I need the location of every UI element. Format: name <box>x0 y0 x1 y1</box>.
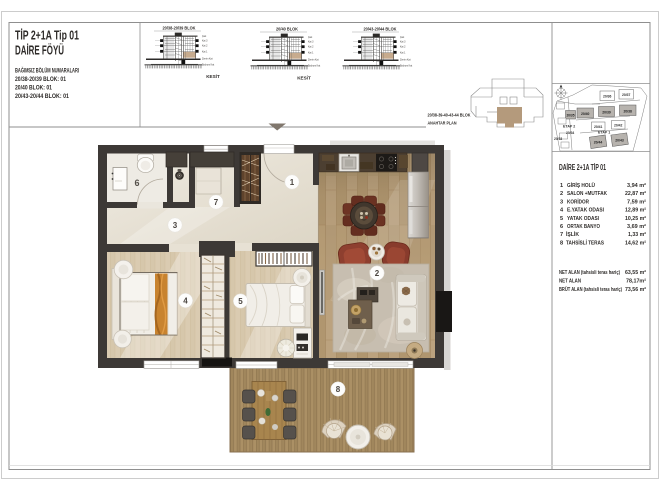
svg-text:6: 6 <box>134 178 139 188</box>
svg-text:E.YATAK ODASI: E.YATAK ODASI <box>567 208 604 214</box>
svg-text:ETAP 2: ETAP 2 <box>563 125 575 129</box>
svg-text:7,59 m²: 7,59 m² <box>627 198 646 205</box>
svg-text:20/39: 20/39 <box>602 111 611 115</box>
svg-text:73,56 m²: 73,56 m² <box>625 286 646 293</box>
svg-text:2: 2 <box>560 191 563 197</box>
svg-text:3: 3 <box>173 221 178 230</box>
svg-text:7: 7 <box>560 232 563 238</box>
svg-text:2: 2 <box>375 269 380 278</box>
svg-text:NET ALAN: NET ALAN <box>559 279 581 285</box>
svg-text:ORTAK BANYO: ORTAK BANYO <box>567 224 601 230</box>
svg-text:14,62 m²: 14,62 m² <box>625 239 646 246</box>
svg-text:DAİRE 2+1A TİP 01: DAİRE 2+1A TİP 01 <box>559 163 606 172</box>
svg-text:5: 5 <box>238 297 243 306</box>
svg-text:20/44: 20/44 <box>594 141 603 145</box>
svg-text:20/38-20/39 BLOK: 01: 20/38-20/39 BLOK: 01 <box>15 76 66 83</box>
svg-text:SALON +MUTFAK: SALON +MUTFAK <box>567 191 607 197</box>
svg-text:4: 4 <box>183 297 188 306</box>
svg-text:3: 3 <box>560 199 563 205</box>
svg-text:ANAHTAR PLAN: ANAHTAR PLAN <box>428 121 457 127</box>
svg-text:TİP 2+1A Tip 01: TİP 2+1A Tip 01 <box>15 28 79 43</box>
svg-text:78,17m²: 78,17m² <box>626 278 646 285</box>
svg-text:BAĞIMSIZ BÖLÜM NUMARALARI: BAĞIMSIZ BÖLÜM NUMARALARI <box>15 67 79 75</box>
svg-text:ETAP 1: ETAP 1 <box>598 131 610 135</box>
svg-text:YATAK ODASI: YATAK ODASI <box>567 216 599 222</box>
svg-text:20/40: 20/40 <box>581 112 590 116</box>
svg-text:GİRİŞ HOLÜ: GİRİŞ HOLÜ <box>567 182 595 189</box>
svg-text:1: 1 <box>290 178 295 187</box>
svg-text:20/38: 20/38 <box>623 109 632 113</box>
svg-text:7: 7 <box>214 198 219 207</box>
svg-text:20/40 BLOK: 01: 20/40 BLOK: 01 <box>15 85 52 92</box>
svg-text:1,33 m²: 1,33 m² <box>628 231 646 238</box>
svg-text:20/37: 20/37 <box>622 93 631 97</box>
svg-text:KORİDOR: KORİDOR <box>567 198 589 205</box>
svg-text:5: 5 <box>560 216 563 222</box>
svg-text:22,87 m²: 22,87 m² <box>625 190 646 197</box>
svg-text:20/42: 20/42 <box>614 124 623 128</box>
svg-text:20/36: 20/36 <box>603 95 612 99</box>
svg-text:1: 1 <box>560 183 563 189</box>
svg-text:8: 8 <box>336 385 341 394</box>
svg-text:TAHSİSLİ TERAS: TAHSİSLİ TERAS <box>566 239 604 246</box>
svg-text:12,89 m²: 12,89 m² <box>625 207 646 214</box>
svg-text:20/43-20/44 BLOK: 01: 20/43-20/44 BLOK: 01 <box>15 93 69 100</box>
svg-text:8: 8 <box>560 240 563 246</box>
svg-text:10,25 m²: 10,25 m² <box>625 215 646 222</box>
svg-text:İŞLİK: İŞLİK <box>566 231 579 238</box>
svg-text:KESİT: KESİT <box>206 73 220 79</box>
svg-text:20/41: 20/41 <box>594 125 603 129</box>
svg-text:20/40 BLOK: 20/40 BLOK <box>276 27 299 32</box>
svg-text:KESİT: KESİT <box>297 75 311 81</box>
svg-text:20/33: 20/33 <box>554 137 562 141</box>
svg-text:3,69 m²: 3,69 m² <box>627 223 646 230</box>
svg-text:20/38-39-40-43-44 BLOK: 20/38-39-40-43-44 BLOK <box>428 113 471 119</box>
svg-text:DAİRE FÖYÜ: DAİRE FÖYÜ <box>15 43 64 58</box>
svg-text:20/34: 20/34 <box>566 131 574 135</box>
svg-text:6: 6 <box>560 224 563 230</box>
svg-text:63,55 m²: 63,55 m² <box>625 269 646 276</box>
svg-text:BRÜT ALAN (tahsisli teras hari: BRÜT ALAN (tahsisli teras hariç) <box>559 286 622 293</box>
svg-text:20/43: 20/43 <box>615 139 624 143</box>
svg-text:NET ALAN (tahsisli teras hariç: NET ALAN (tahsisli teras hariç) <box>559 270 620 276</box>
svg-text:3,94 m²: 3,94 m² <box>627 182 646 189</box>
svg-text:20/38-20/39 BLOK: 20/38-20/39 BLOK <box>163 26 197 31</box>
svg-text:20/35: 20/35 <box>567 114 575 118</box>
svg-text:20/43-20/44 BLOK: 20/43-20/44 BLOK <box>364 27 398 32</box>
